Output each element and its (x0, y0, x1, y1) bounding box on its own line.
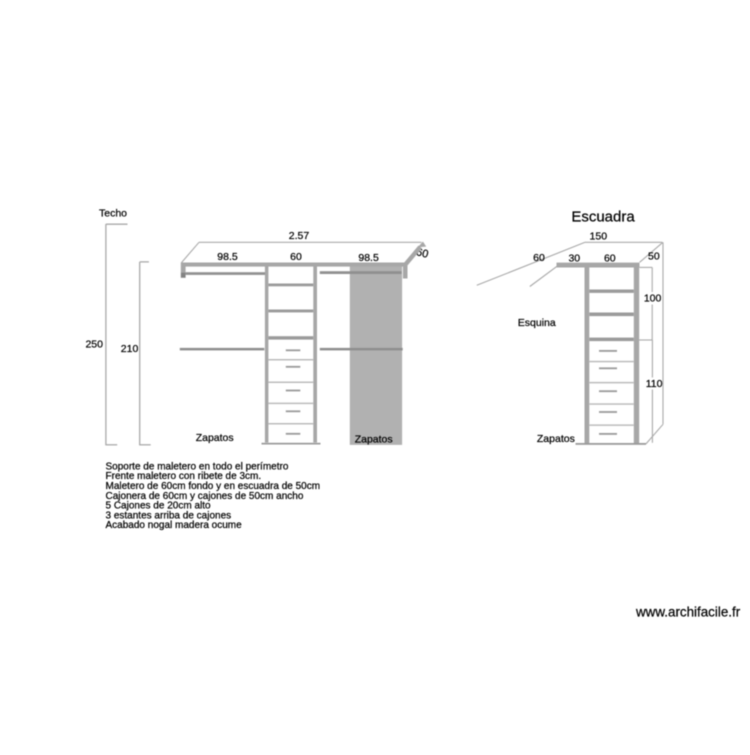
svg-text:210: 210 (121, 343, 139, 355)
svg-text:Zapatos: Zapatos (196, 432, 234, 444)
svg-text:Escuadra: Escuadra (571, 209, 635, 226)
svg-text:250: 250 (85, 338, 103, 350)
svg-text:www.archifacile.fr: www.archifacile.fr (635, 605, 741, 620)
svg-text:110: 110 (646, 378, 663, 390)
svg-text:100: 100 (644, 292, 662, 304)
svg-text:98.5: 98.5 (217, 251, 238, 263)
svg-text:60: 60 (533, 252, 545, 264)
svg-text:Zapatos: Zapatos (355, 433, 393, 445)
svg-text:Zapatos: Zapatos (537, 433, 575, 445)
svg-text:2.57: 2.57 (289, 230, 310, 242)
svg-text:150: 150 (590, 230, 608, 242)
svg-text:Techo: Techo (99, 208, 127, 220)
svg-text:Acabado nogal madera ocume: Acabado nogal madera ocume (106, 520, 243, 531)
svg-text:60: 60 (290, 251, 302, 263)
svg-text:50: 50 (648, 251, 660, 263)
svg-text:Esquina: Esquina (518, 317, 556, 329)
svg-text:98.5: 98.5 (358, 252, 379, 264)
